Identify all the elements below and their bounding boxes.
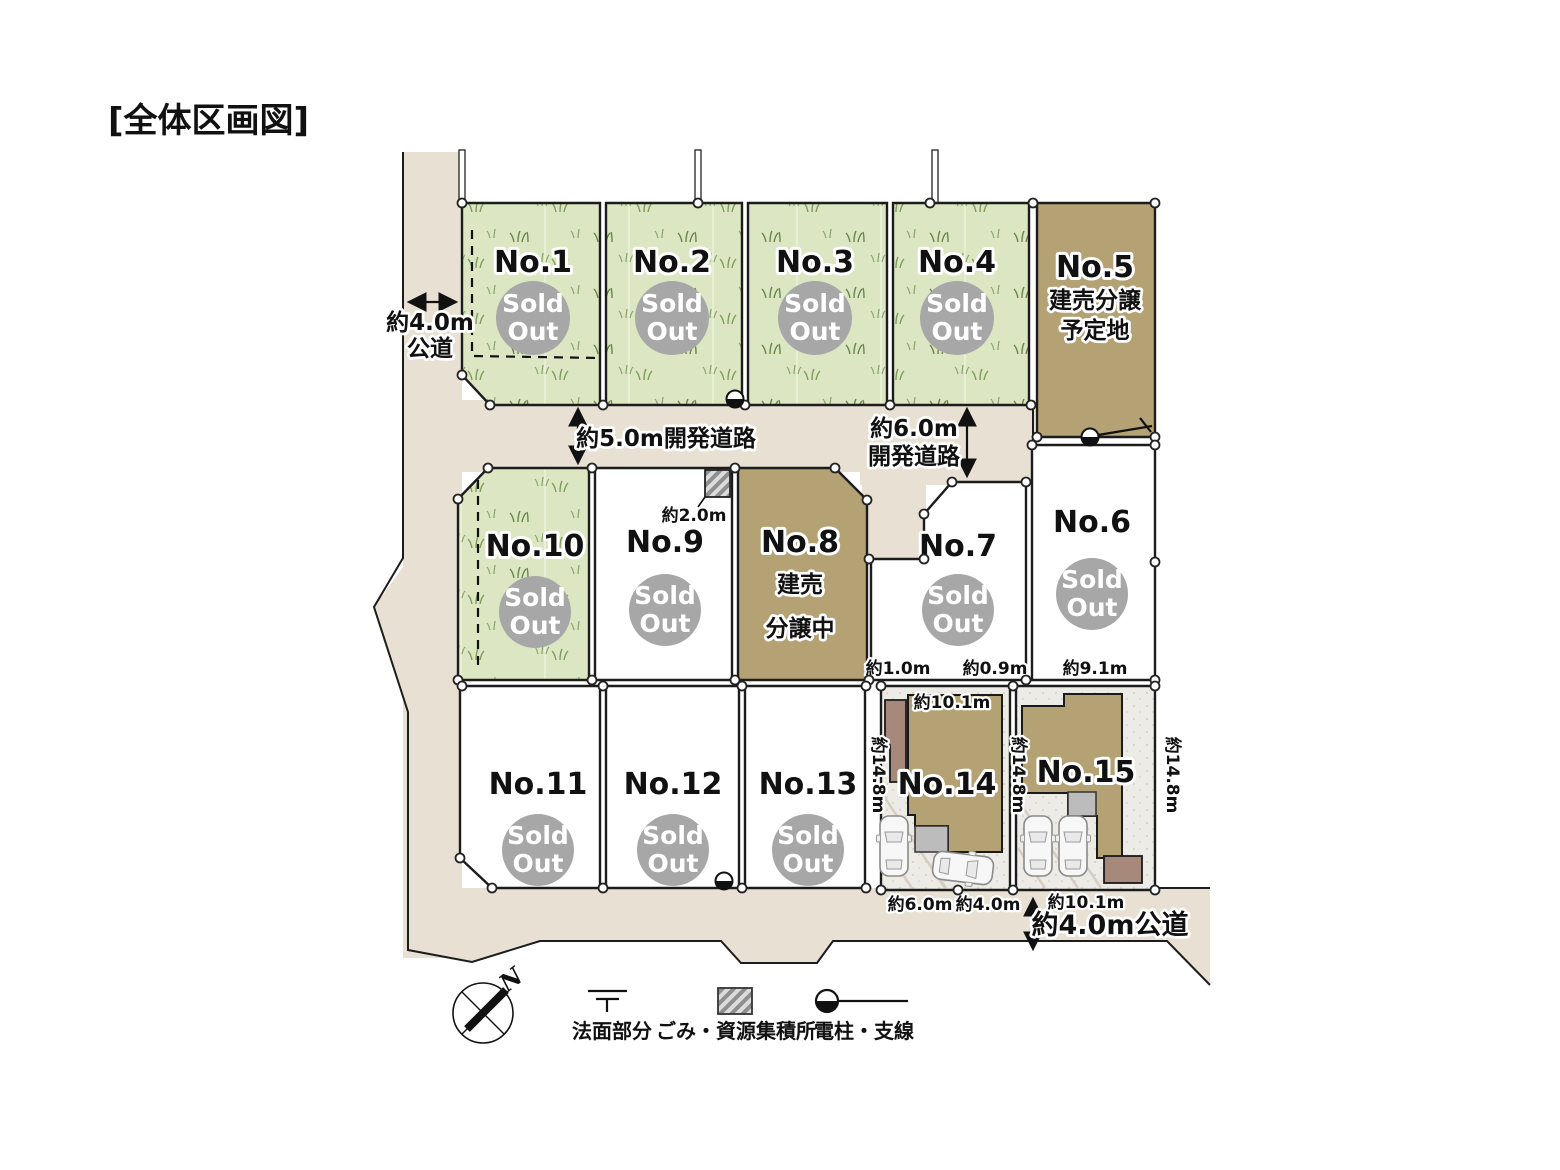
lot-label-no15: No.15 [1037,755,1136,790]
svg-text:Sold: Sold [642,821,704,850]
svg-text:Sold: Sold [641,289,703,318]
lot-label-no11: No.11 [489,767,588,802]
svg-text:Sold: Sold [784,289,846,318]
dimension-south-3: 約10.1m [1048,892,1125,913]
legend: 法面部分 ごみ・資源集積所 電柱・支線 [572,988,914,1043]
lot-label-no14: No.14 [898,767,997,802]
sold-out-badge-no9: SoldOut [629,574,701,646]
lot-label-no9: No.9 [626,525,704,560]
road-label-south: 約4.0m公道 [1032,909,1189,941]
legend-slope-label: 法面部分 [572,1019,652,1043]
svg-text:Out: Out [639,609,690,638]
svg-text:Sold: Sold [1061,565,1123,594]
garbage-icon [718,988,752,1014]
house-15-annex [1104,856,1142,883]
svg-text:Out: Out [789,317,840,346]
lot-label-no2: No.2 [633,245,711,280]
lot-label-no1: No.1 [494,245,572,280]
utility-pole-icon [716,873,733,890]
road-label-east-2: 開発道路 [868,443,961,470]
svg-text:Sold: Sold [926,289,988,318]
sold-out-badge-no4: SoldOut [920,281,994,355]
lot-note-no5-1: 建売分譲 [1049,287,1142,314]
road-label-east-1: 約6.0m [870,415,958,442]
svg-text:Out: Out [932,609,983,638]
lot-label-no6: No.6 [1053,505,1131,540]
dimension-lot7-left: 約1.0m [866,658,931,679]
lot-note-no8-2: 分譲中 [766,615,835,642]
dimension-lot14-width: 約10.1m [914,692,991,713]
svg-text:Sold: Sold [504,583,566,612]
svg-text:Out: Out [646,317,697,346]
utility-pole-icon [727,391,744,408]
site-plan-page: 約2.0m SoldOut SoldOut SoldOut SoldOut So… [0,0,1560,1170]
dimension-lot7-right: 約0.9m [963,658,1028,679]
pole-icon [816,990,908,1012]
sold-out-badge-no13: SoldOut [772,814,844,886]
sold-out-badge-no6: SoldOut [1056,558,1128,630]
storage-box-15 [1068,792,1096,816]
site-plan-svg: 約2.0m SoldOut SoldOut SoldOut SoldOut So… [0,0,1560,1170]
dimension-south-2: 約4.0m [956,894,1021,915]
dimension-garbage: 約2.0m [662,505,727,526]
sold-out-badge-no3: SoldOut [778,281,852,355]
storage-box-14 [915,826,948,852]
svg-text:Sold: Sold [502,289,564,318]
sold-out-badge-no2: SoldOut [635,281,709,355]
boundary-stub [695,150,701,204]
svg-text:Out: Out [509,611,560,640]
lot-label-no12: No.12 [624,767,723,802]
road-label-mid: 約5.0m開発道路 [576,425,757,452]
svg-text:Sold: Sold [777,821,839,850]
boundary-stub [932,150,938,204]
compass: N [453,960,529,1043]
svg-text:Sold: Sold [507,821,569,850]
svg-text:Sold: Sold [927,581,989,610]
svg-text:Out: Out [512,849,563,878]
sold-out-badge-no7: SoldOut [922,574,994,646]
svg-text:Out: Out [931,317,982,346]
lot-label-no10: No.10 [486,529,585,564]
road-label-west-width: 約4.0m [386,309,474,336]
dimension-depth-right: 約14.8m [1162,737,1183,814]
lot-no9 [595,468,732,680]
svg-text:Out: Out [507,317,558,346]
lot-note-no5-2: 予定地 [1061,317,1130,344]
lot-note-no8-1: 建売 [777,572,823,598]
legend-garbage-label: ごみ・資源集積所 [656,1019,816,1043]
svg-text:Out: Out [1066,593,1117,622]
lot-label-no7: No.7 [919,529,997,564]
sold-out-badge-no12: SoldOut [637,814,709,886]
legend-pole-label: 電柱・支線 [814,1019,914,1043]
page-title: [全体区画図] [108,101,309,141]
lot-label-no3: No.3 [776,245,854,280]
sold-out-badge-no10: SoldOut [499,576,571,648]
car-icon [1056,816,1091,876]
lot-label-no4: No.4 [918,245,996,280]
svg-text:Out: Out [782,849,833,878]
dimension-south-1: 約6.0m [888,894,953,915]
car-icon [877,816,912,876]
lot-label-no8: No.8 [761,525,839,560]
lot-label-no13: No.13 [759,767,858,802]
svg-text:Sold: Sold [634,581,696,610]
road-label-west-type: 公道 [407,335,453,362]
sold-out-badge-no1: SoldOut [496,281,570,355]
boundary-stub [459,150,465,204]
sold-out-badge-no11: SoldOut [502,814,574,886]
slope-icon [588,991,627,1012]
dimension-depth-left: 約14.8m [868,737,889,814]
svg-text:Out: Out [647,849,698,878]
dimension-depth-mid: 約14.8m [1008,737,1029,814]
car-icon [1021,816,1056,876]
lot-label-no5: No.5 [1056,250,1134,285]
dimension-lot6-width: 約9.1m [1063,658,1128,679]
